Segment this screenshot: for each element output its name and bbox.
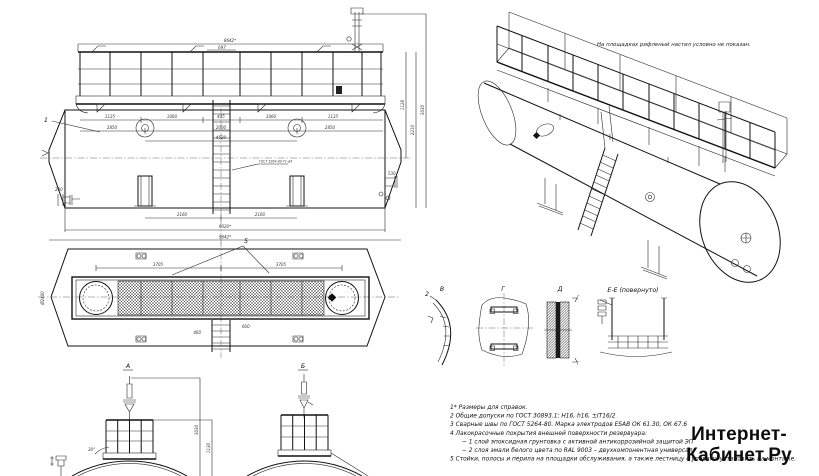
vent-assembly-b — [298, 374, 313, 418]
detail-g-label: Г — [501, 286, 505, 293]
dim: 600 — [242, 324, 250, 329]
drain-nozzle: 200 — [55, 187, 80, 206]
dim: 1135 — [328, 114, 339, 119]
dim: 9020* — [219, 224, 231, 229]
section-view-ee: Е-Е (повернуто) — [598, 287, 672, 357]
detail-view-d: Д Г Г — [544, 286, 580, 366]
dim: 2210 — [410, 124, 415, 135]
view-a-label: А — [125, 363, 130, 370]
railing-posts-b — [281, 415, 328, 450]
railing-posts-a — [106, 420, 153, 453]
end-view-b: Б — [247, 363, 368, 476]
railing-posts — [80, 52, 381, 96]
isometric-view: На площадках рифленый настил условно не … — [470, 12, 794, 294]
detail-d-label: Д — [557, 286, 563, 293]
iso-hatch-handle — [533, 132, 540, 139]
dim: 1128 — [400, 99, 405, 110]
plate-fragment — [479, 298, 529, 357]
detail-view-g: Г — [476, 286, 534, 366]
vent-assembly-side — [347, 8, 363, 52]
dim: 9642* — [219, 235, 231, 240]
dim: 4520 — [216, 135, 227, 140]
dim: 2850 — [107, 125, 118, 130]
watermark-line-2: Кабинет.Ру — [663, 445, 815, 466]
tank-drawing-canvas: 8642* 697 1135 1060 445 1060 1135 — [0, 0, 819, 476]
item-balloon-1: 1 — [44, 117, 48, 124]
iso-note: На площадках рифленый настил условно не … — [597, 42, 751, 48]
view-b-label: Б — [301, 363, 305, 370]
plan-view: 400 600 3705 3705 Ø2400 5 — [38, 238, 400, 358]
dim: 2160 — [177, 212, 188, 217]
dim-opening: 697 — [218, 45, 226, 50]
dim: 1130 — [206, 442, 211, 453]
nozzle-a — [50, 456, 66, 476]
hatch-left-plan — [80, 282, 113, 315]
hatch-handle — [328, 293, 336, 301]
dim: 1060 — [167, 114, 178, 119]
note-line: − 2 слоя эмали белого цвета по RAL 9003 … — [462, 448, 693, 454]
note-line: 1* Размеры для справок. — [450, 405, 528, 411]
dim: 1060 — [266, 114, 277, 119]
dim: 3030 — [420, 104, 425, 115]
side-nozzle: 530 — [379, 171, 397, 200]
iso-nozzle-top — [646, 193, 655, 202]
walkway-grating — [118, 281, 324, 315]
dim: 400 — [193, 330, 201, 335]
dim: 200 — [55, 187, 63, 192]
item-balloon-2: 2 — [425, 291, 429, 298]
view-arrow — [42, 150, 48, 156]
dim: 30° — [88, 447, 95, 452]
deck-brackets — [97, 104, 360, 112]
note-line: 3 Сварные швы по ГОСТ 5264-80. Марка эле… — [450, 422, 687, 428]
section-letter: Г — [577, 361, 580, 366]
side-elevation-view: 8642* 697 1135 1060 445 1060 1135 — [40, 8, 426, 246]
dim: 3030 — [194, 424, 199, 435]
dim-overall-length: 8642* — [224, 38, 236, 43]
dim: 445 — [217, 114, 225, 119]
watermark-line-1: Интернет- — [663, 424, 815, 445]
note-line: − 1 слой эпоксидная грунтовка с активной… — [462, 439, 694, 445]
vent-assembly-a — [123, 376, 136, 420]
detail-v-label: В — [440, 286, 444, 293]
drawing-sheet: 8642* 697 1135 1060 445 1060 1135 — [0, 0, 819, 476]
dim: 2850 — [325, 125, 336, 130]
item-balloon-5: 5 — [244, 238, 248, 245]
dim: 530 — [388, 171, 396, 176]
note-line: 4 Лакокрасочные покрытия внешней поверхн… — [450, 431, 647, 437]
tank-back-head — [470, 76, 523, 150]
rail-fitting — [336, 86, 342, 94]
watermark: Интернет- Кабинет.Ру — [663, 424, 815, 466]
dim: 1135 — [105, 114, 116, 119]
deck-stands-iso — [548, 88, 725, 172]
section-ee-label: Е-Е (повернуто) — [607, 287, 658, 294]
tank-front-head — [685, 170, 794, 295]
weld-flags — [92, 46, 331, 52]
end-view-a: А 30° 3030 1130 — [50, 363, 212, 476]
plan-ladder: 400 600 — [193, 320, 250, 352]
note-line: 2 Общие допуски по ГОСТ 30893.1: Н16, h1… — [450, 414, 616, 420]
platform-deck-iso — [497, 48, 787, 168]
dim: 3705 — [276, 262, 287, 267]
weld-callout: ГОСТ 5264-80-Т1-Δ4 — [259, 160, 292, 164]
dim: 2000 — [216, 125, 227, 130]
section-letter: Г — [577, 295, 580, 300]
dim: 3705 — [153, 262, 164, 267]
dim: Ø2400 — [40, 291, 45, 306]
detail-view-v: В 2 — [425, 286, 451, 365]
dim: 2160 — [255, 212, 266, 217]
